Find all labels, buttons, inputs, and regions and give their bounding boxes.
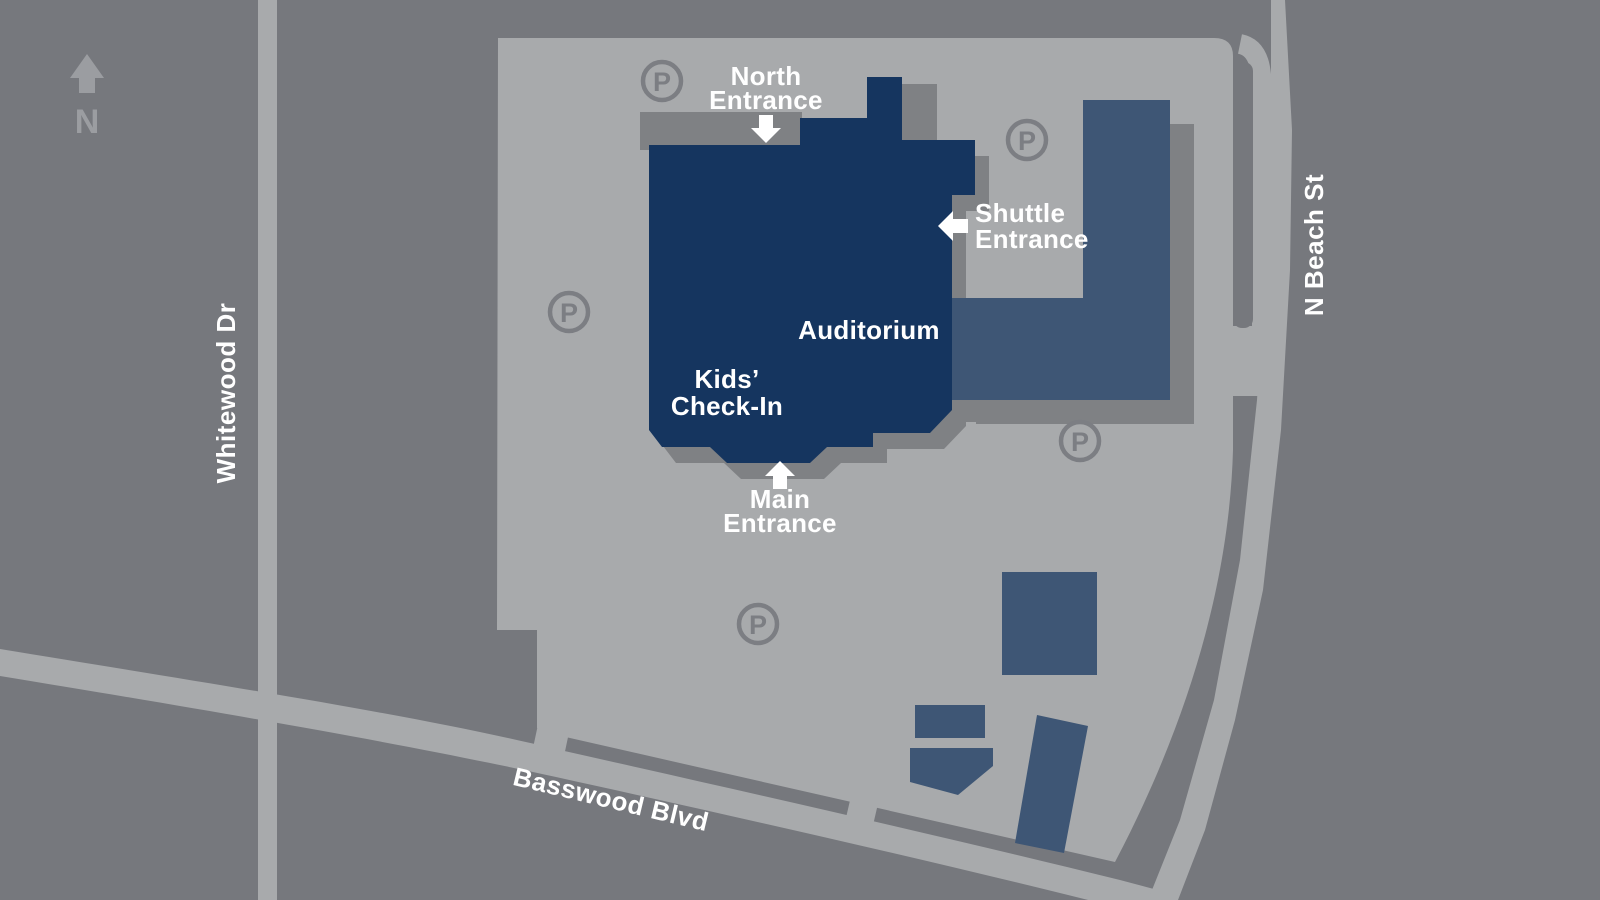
parking-symbol: P (1018, 126, 1036, 156)
outbuilding-square (1002, 572, 1097, 675)
parking-symbol: P (560, 298, 578, 328)
parking-symbol: P (1071, 427, 1089, 457)
parking-symbol: P (653, 67, 671, 97)
compass-n-label: N (75, 103, 100, 141)
main-entrance-label-line2: Entrance (723, 508, 837, 538)
campus-map: P P P P P N Whitewood Dr N Beach St Bass… (0, 0, 1600, 900)
whitewood-dr-road (258, 0, 277, 900)
north-entrance-label-line2: Entrance (709, 85, 823, 115)
parking-symbol: P (749, 610, 767, 640)
street-label-whitewood: Whitewood Dr (211, 303, 241, 484)
shuttle-entrance-label-line2: Entrance (975, 224, 1089, 254)
street-label-n-beach: N Beach St (1299, 174, 1329, 316)
auditorium-label: Auditorium (798, 315, 940, 345)
lot-apron (1228, 326, 1278, 396)
median-island (1233, 62, 1253, 328)
map-canvas: P P P P P N Whitewood Dr N Beach St Bass… (0, 0, 1600, 900)
kids-checkin-label-line2: Check-In (671, 391, 783, 421)
kids-checkin-label-line1: Kids’ (694, 364, 759, 394)
outbuilding-rect (915, 705, 985, 738)
